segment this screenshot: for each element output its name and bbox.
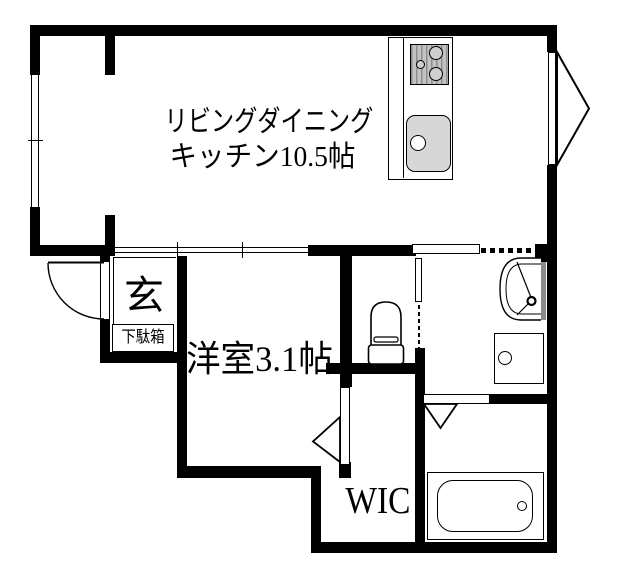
ldk-room-label-line1: リビングダイニング [165,104,361,140]
western-room-label-text: 洋室3.1帖 [186,339,333,379]
ldk-east-door-swing-icon [557,52,589,165]
ldk-room-label-line2: キッチン10.5帖 [146,140,379,174]
wic-label: WIC [338,481,418,521]
entrance-label: 玄 [110,274,178,318]
shoe-cabinet-label: 下駄箱 [121,325,164,350]
entrance-door-arc [48,263,104,319]
wic-door-swing-icon [313,417,340,462]
bathroom-door-swing-icon [424,404,457,428]
washbasin-faucet-icon [528,297,536,305]
shoe-cabinet-box: 下駄箱 [112,324,174,352]
floorplan-linework [0,0,618,573]
toilet-tank-icon [369,345,404,364]
toilet-seat-icon [374,337,398,342]
floorplan: リビングダイニング キッチン10.5帖 玄 下駄箱 洋室3.1帖 WIC [0,0,618,573]
wic-label-text: WIC [345,481,410,521]
western-room-label: 洋室3.1帖 [186,339,339,379]
ldk-room-label: リビングダイニング キッチン10.5帖 [140,104,385,174]
